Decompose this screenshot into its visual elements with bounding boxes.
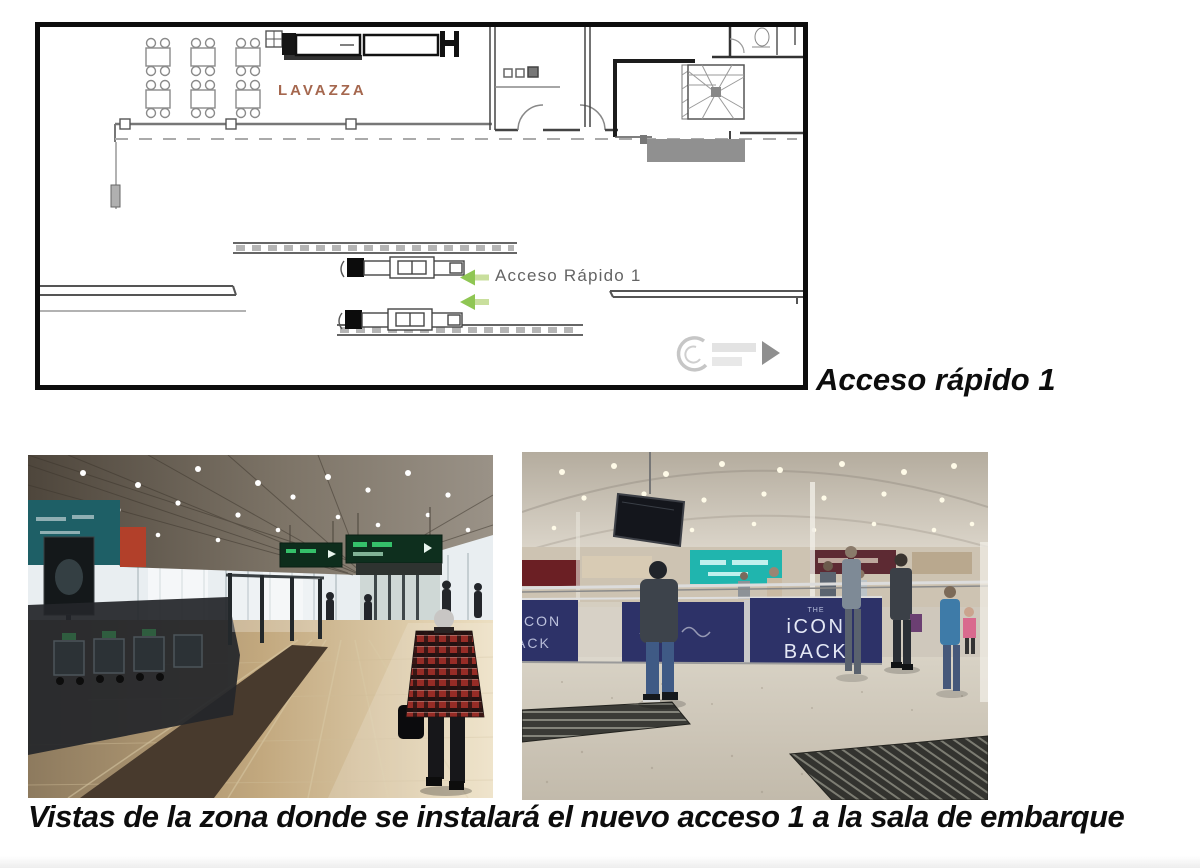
orange-panel [120,527,146,567]
scanned-document-page: LAVAZZA [0,0,1200,868]
access-rapido-label: Acceso Rápido 1 [495,266,642,285]
support-pole [810,482,815,598]
banner-back-text: BACK [784,641,848,663]
cafe-tables [146,39,260,118]
banner-partial-text: CON [524,613,561,629]
scan-shadow [0,856,1200,868]
access-gate-lower [339,309,462,330]
photo-left-station-view [28,455,493,798]
play-icon [762,341,780,365]
plan-caption: Acceso rápido 1 [816,362,1116,398]
banner-the-text: THE [808,607,825,614]
photos-caption: Vistas de la zona donde se instalará el … [28,799,1188,835]
left-arrow-icon [460,294,489,310]
icon-back-banner: CON ACK THE iCON BACK [522,597,882,664]
floor-plan-drawing: LAVAZZA [40,27,803,385]
hatched-block [640,135,745,162]
glass-wall [111,119,492,209]
watermark-logo [679,338,780,370]
banner-partial-text: ACK [522,635,551,651]
stair-room [615,61,744,137]
access-gate-upper [341,257,464,278]
floor-plan: LAVAZZA [35,22,808,390]
child-pink [963,618,976,638]
banner-icon-text: iCON [787,616,846,638]
purple-bag [910,614,922,632]
photo-right-station-view: CON ACK THE iCON BACK [522,452,988,800]
beanie [434,609,454,629]
lavazza-label: LAVAZZA [278,82,367,99]
bar-counter [266,31,459,60]
service-rooms [490,27,618,130]
floor [522,657,988,800]
